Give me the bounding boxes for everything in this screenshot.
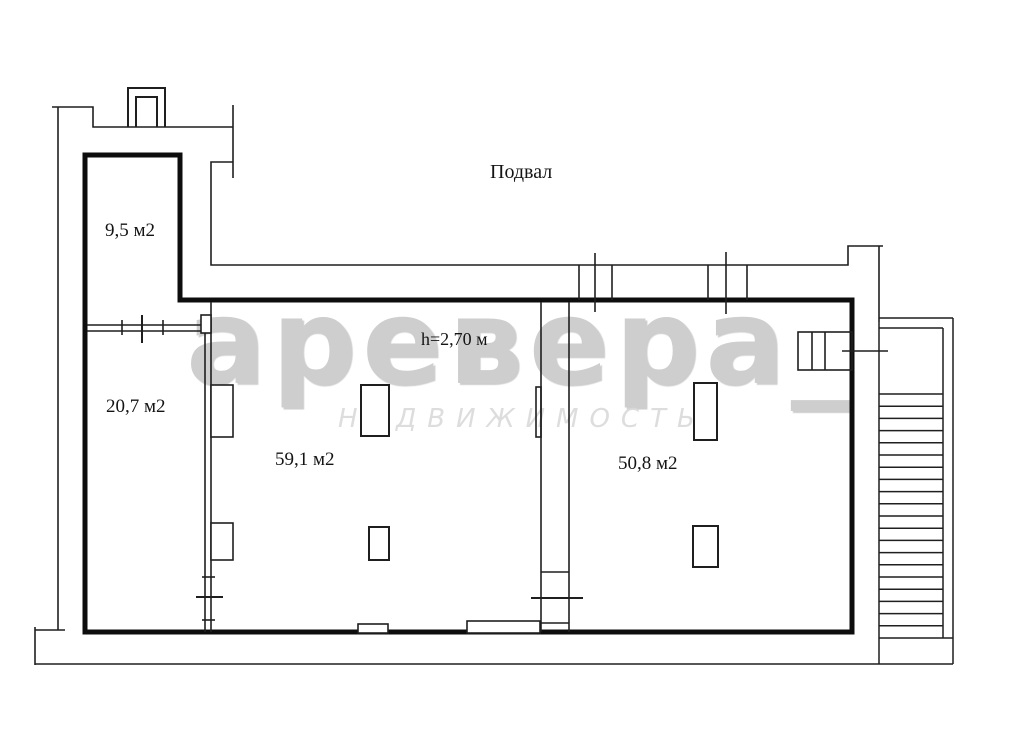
top-wall-windows [579,252,747,314]
floor-title: Подвал [490,161,552,184]
room-area-label-59-1: 59,1 м2 [275,449,335,471]
stair-treads [879,394,943,626]
floorplan-page: аревера_ НЕДВИЖИМОСТЬ [0,0,1024,736]
floorplan-drawing [0,0,1024,736]
room-area-label-9-5: 9,5 м2 [105,220,155,242]
premise-outline-thick-wall [85,155,852,632]
staircase [879,318,953,664]
chimney-shaft [128,88,165,127]
room-area-label-20-7: 20,7 м2 [106,396,166,418]
right-wall-window [798,332,888,370]
interior-walls [87,302,583,632]
ceiling-height-label: h=2,70 м [421,329,488,350]
exterior-walls [35,105,953,665]
room-area-label-50-8: 50,8 м2 [618,453,678,475]
